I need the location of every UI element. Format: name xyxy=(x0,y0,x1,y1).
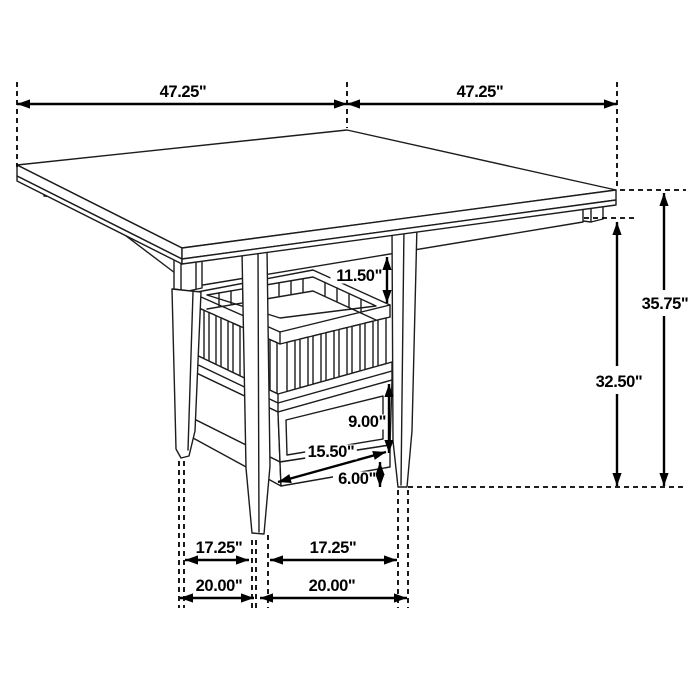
leg-front-center xyxy=(242,249,270,534)
basket-slat xyxy=(233,323,240,376)
dim-overall-height: 35.75" xyxy=(639,193,691,486)
dim-arrowhead xyxy=(347,99,360,108)
basket-slat xyxy=(313,334,321,384)
dim-arrowhead xyxy=(384,555,397,564)
dim-arrowhead xyxy=(180,593,193,602)
dim-arrowhead xyxy=(612,473,621,486)
dim-label: 17.25" xyxy=(310,539,357,557)
dim-arrowhead xyxy=(604,99,617,108)
dim-label: 32.50" xyxy=(596,373,643,391)
dim-label: 6.00" xyxy=(338,470,376,488)
dim-leg-spacing-outer-left: 20.00" xyxy=(180,577,254,603)
leg-right xyxy=(392,225,417,487)
basket-slat xyxy=(300,337,308,388)
basket-slat xyxy=(221,318,228,370)
dim-leg-spacing-inner-left: 17.25" xyxy=(185,539,249,565)
dim-arrowhead xyxy=(334,99,347,108)
dim-arrowhead xyxy=(17,99,30,108)
dim-arrowhead xyxy=(382,290,391,303)
dim-arrowhead xyxy=(394,593,407,602)
tabletop xyxy=(17,130,616,264)
dim-arrowhead xyxy=(612,222,621,235)
dim-leg-spacing-inner-right: 17.25" xyxy=(270,539,397,565)
basket-slat xyxy=(365,321,373,369)
dim-leg-spacing-outer-right: 20.00" xyxy=(260,577,407,603)
dim-arrowhead xyxy=(375,474,384,487)
dim-arrowhead xyxy=(659,473,668,486)
basket-slat xyxy=(287,340,295,391)
apron-corner-post-front xyxy=(174,260,202,291)
dim-arrowhead xyxy=(382,257,391,270)
dim-label: 9.00" xyxy=(348,413,386,431)
basket-slat xyxy=(378,318,386,366)
dim-tabletop-edge-left: 47.25" xyxy=(17,83,347,109)
furniture-dimension-diagram: 47.25"47.25"35.75"32.50"11.50"9.00"15.50… xyxy=(0,0,700,700)
dim-label: 11.50" xyxy=(336,267,382,285)
dim-label: 15.50" xyxy=(308,443,355,461)
basket-slat xyxy=(270,340,277,394)
dim-label: 20.00" xyxy=(196,577,243,595)
dim-label: 35.75" xyxy=(642,295,689,313)
dim-label: 47.25" xyxy=(160,83,207,101)
dim-label: 47.25" xyxy=(457,83,504,101)
basket-slat xyxy=(352,324,360,373)
dim-tabletop-edge-right: 47.25" xyxy=(347,83,617,109)
diagram-canvas: 47.25"47.25"35.75"32.50"11.50"9.00"15.50… xyxy=(0,0,700,700)
dim-apron-to-floor-height: 32.50" xyxy=(593,222,645,486)
table-line-art xyxy=(17,130,616,534)
basket-slat xyxy=(339,328,347,377)
dim-label: 20.00" xyxy=(309,577,356,595)
basket-slat xyxy=(326,331,334,381)
dim-label: 17.25" xyxy=(196,539,243,557)
dim-arrowhead xyxy=(270,555,283,564)
dim-arrowhead xyxy=(659,193,668,206)
basket-slat xyxy=(209,313,216,365)
dim-arrowhead xyxy=(260,593,273,602)
